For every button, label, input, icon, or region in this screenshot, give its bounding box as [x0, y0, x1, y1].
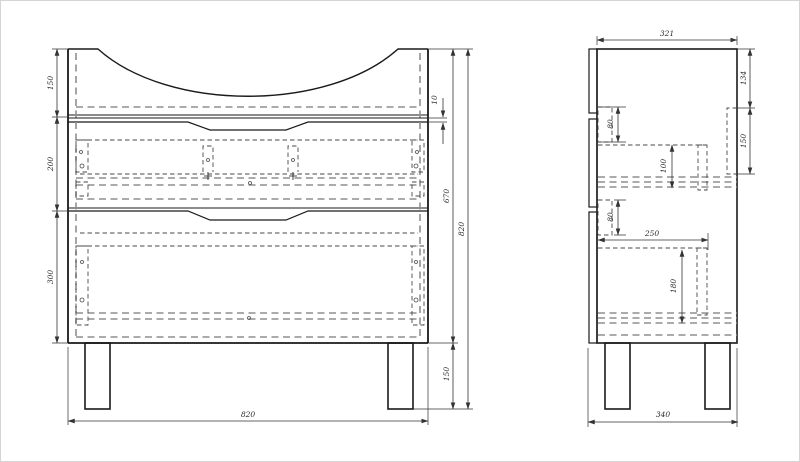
dim-label-slide-offset-lower: 80	[606, 212, 615, 222]
page-border	[1, 1, 800, 462]
dim-label-total-depth: 340	[656, 410, 671, 419]
dim-label-width: 820	[241, 410, 256, 419]
dim-label-top-width: 321	[660, 29, 674, 38]
dim-label-top-section-height: 150	[46, 76, 55, 91]
dim-label-leg-height: 150	[442, 367, 451, 382]
dim-label-back-offset: 134	[739, 71, 748, 86]
dim-label-drawer-box-height: 180	[669, 279, 678, 294]
dim-label-slide-offset-upper: 80	[606, 119, 615, 129]
drawing-canvas: 150 200 300 10 670 150 820 820 3	[0, 0, 800, 462]
dim-label-slide-length: 250	[644, 229, 660, 238]
dim-label-back-rail-height: 150	[739, 134, 748, 149]
dim-label-carcass-height: 670	[442, 189, 451, 204]
technical-drawing-svg: 150 200 300 10 670 150 820 820 3	[0, 0, 800, 462]
dim-label-drawer1-height: 200	[46, 157, 55, 173]
dim-label-slide-plate-height: 100	[659, 159, 668, 174]
dim-label-top-gap: 10	[430, 95, 439, 105]
dim-label-total-height: 820	[457, 222, 466, 237]
dim-label-drawer2-height: 300	[46, 270, 55, 285]
